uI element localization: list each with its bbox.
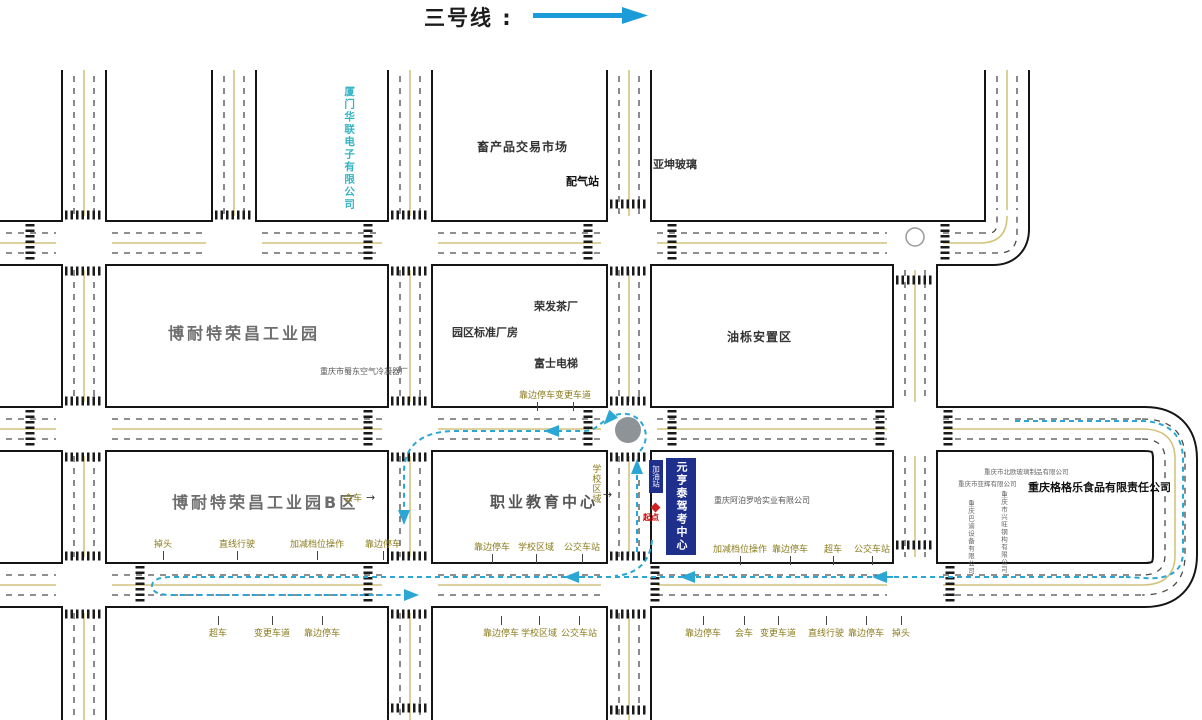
exam-item-label: 超车 bbox=[824, 542, 842, 565]
exam-item-label: 变更车道 bbox=[254, 616, 290, 639]
gas-station-box: 加油站 bbox=[649, 460, 663, 493]
exam-item-label: 公交车站 bbox=[854, 542, 890, 565]
apoluoha-company-label: 重庆阿泊罗哈实业有限公司 bbox=[714, 496, 810, 505]
gas-distribution-station-label: 配气站 bbox=[566, 176, 599, 189]
route-title-text: 三号线 : bbox=[424, 6, 513, 30]
small-company-label: 重庆市亚辉有限公司 bbox=[958, 481, 1017, 488]
exam-item-label: 会车 bbox=[735, 616, 753, 639]
exam-item-label: 公交车站 bbox=[561, 616, 597, 639]
exam-item-label: 掉头 bbox=[892, 616, 910, 639]
start-point-label: 起点 bbox=[643, 513, 659, 522]
exam-item-label: 靠边停车 bbox=[772, 542, 808, 565]
meeting-arrow-icon: → bbox=[366, 492, 375, 505]
exam-item-label: 加减档位操作 bbox=[290, 537, 344, 560]
school-zone-arrow-icon: → bbox=[603, 489, 612, 502]
exam-item-label: 变更车道 bbox=[760, 616, 796, 639]
glass-company-label: 重庆市北欧玻璃制品有限公司 bbox=[984, 469, 1069, 476]
exam-item-label: 变更车道 bbox=[555, 388, 591, 411]
rongfa-tea-factory-label: 荣发茶厂 bbox=[534, 301, 578, 314]
exam-item-label: 靠边停车 bbox=[474, 540, 510, 563]
exam-item-label: 超车 bbox=[209, 616, 227, 639]
livestock-market-label: 畜产品交易市场 bbox=[477, 141, 568, 155]
park-standard-workshop-label: 园区标准厂房 bbox=[452, 327, 518, 340]
exam-item-label: 靠边停车 bbox=[365, 537, 401, 560]
map-canvas bbox=[0, 70, 1202, 720]
exam-item-label: 靠边停车 bbox=[483, 616, 519, 639]
exam-item-label: 学校区域 bbox=[518, 540, 554, 563]
exam-item-label: 加减档位操作 bbox=[713, 542, 767, 565]
gegele-food-company-label: 重庆格格乐食品有限责任公司 bbox=[1028, 482, 1171, 495]
exam-item-label: 靠边停车 bbox=[685, 616, 721, 639]
vertical-company-2-label: 重庆巴渝设备有限公司 bbox=[966, 500, 973, 575]
exam-item-label: 学校区域 bbox=[521, 616, 557, 639]
route-title: 三号线 : bbox=[424, 2, 513, 32]
xiamen-hualian-electronics-label: 厦门华联电子有限公司 bbox=[343, 86, 355, 211]
driving-test-center-box: 元亨泰驾考中心 bbox=[666, 458, 696, 555]
exam-item-label: 靠边停车 bbox=[848, 616, 884, 639]
fuji-elevator-label: 富士电梯 bbox=[534, 358, 578, 371]
vocational-education-center-label: 职业教育中心 bbox=[490, 494, 598, 511]
air-condenser-factory-label: 重庆市蜀东空气冷凝器厂 bbox=[320, 367, 408, 376]
vertical-company-1-label: 重庆市兴旺钢构有限公司 bbox=[999, 491, 1006, 574]
exam-item-label: 直线行驶 bbox=[219, 537, 255, 560]
school-zone-side-label: 学校区域 bbox=[590, 464, 600, 504]
exam-item-label: 公交车站 bbox=[564, 540, 600, 563]
exam-item-label: 靠边停车 bbox=[304, 616, 340, 639]
bonaite-industrial-park-b-label: 博耐特荣昌工业园B区 bbox=[172, 494, 358, 512]
route-direction-arrow-icon bbox=[530, 7, 650, 24]
bonaite-industrial-park-label: 博耐特荣昌工业园 bbox=[168, 325, 320, 343]
exam-item-label: 直线行驶 bbox=[808, 616, 844, 639]
exam-item-label: 靠边停车 bbox=[519, 388, 555, 411]
yakun-glass-label: 亚坤玻璃 bbox=[653, 159, 697, 172]
meeting-vehicles-side-label: 会车 bbox=[344, 494, 362, 504]
exam-item-label: 掉头 bbox=[154, 537, 172, 560]
youli-resettlement-area-label: 油栎安置区 bbox=[727, 331, 792, 345]
route-map: { "title": { "line_label": "三号线 :" }, "m… bbox=[0, 0, 1202, 720]
